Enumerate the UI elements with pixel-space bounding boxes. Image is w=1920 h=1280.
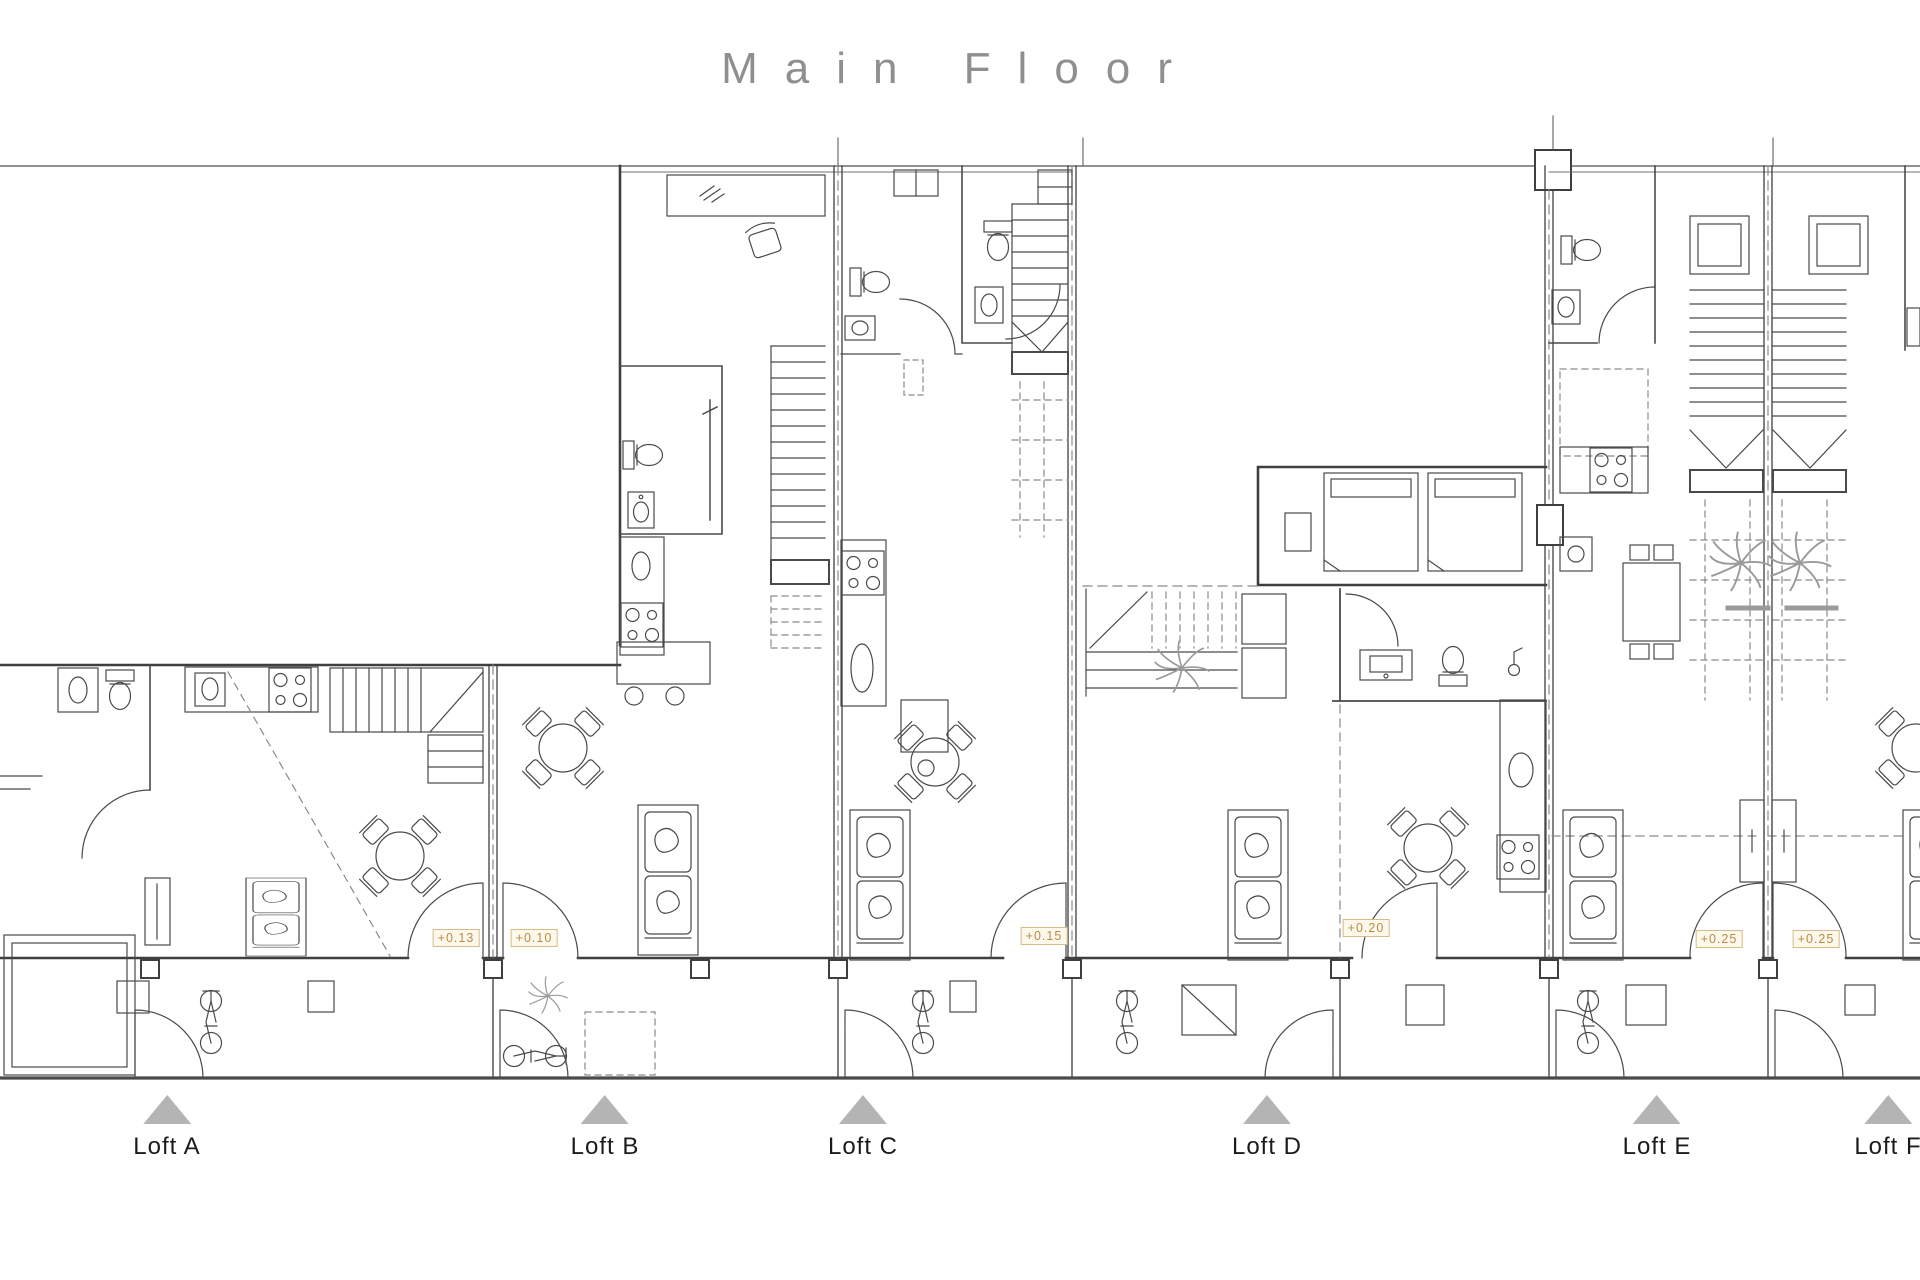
bicycle-icon [504,1046,567,1067]
elevation-badge: +0.25 [1793,930,1840,948]
plant-icon [529,977,567,1013]
dining-set-icon [1623,545,1680,659]
storage-room [4,935,135,1075]
bicycle-icon [1117,991,1138,1054]
dining-table-icon [1876,708,1920,789]
plant-icon [1711,533,1772,591]
loft-marker-b: Loft B [571,1095,640,1161]
loft-marker-d: Loft D [1232,1095,1302,1161]
toilet-icon [1561,236,1601,264]
loft-a-plan [0,665,483,958]
loft-e-plan [1549,166,1771,960]
dining-table-icon [523,708,604,789]
loft-label: Loft A [133,1133,200,1161]
stove-icon [621,603,663,647]
entrance-triangle-icon [581,1095,629,1124]
plant-icon [1770,533,1831,591]
elevation-badge: +0.13 [433,929,480,947]
entrance-triangle-icon [1864,1095,1912,1124]
structural-walls [0,166,1920,958]
sofa-icon [850,810,910,960]
loft-f-plan [1768,166,1920,960]
dining-table-icon [360,816,441,897]
toilet-icon [623,441,663,469]
dining-table-icon [1388,808,1469,889]
loft-marker-c: Loft C [828,1095,898,1161]
door-arc-icon [1346,594,1398,646]
stool-icon [625,687,643,705]
sink-icon [628,492,654,528]
porch-door-arc-icon [135,1010,1843,1078]
stool-icon [666,687,684,705]
shower-icon [1509,648,1523,676]
loft-label: Loft F [1854,1133,1920,1161]
loft-label: Loft E [1623,1133,1692,1161]
staircase-icon [1012,204,1068,537]
floor-plan-drawing [0,0,1920,1280]
door-arc-icon [82,790,150,858]
entrance-triangle-icon [1243,1095,1291,1124]
chair-icon [745,220,783,259]
staircase-icon [1086,589,1237,696]
door-arc-icon [841,299,962,354]
stove-icon [1497,835,1539,879]
vanity-icon [1360,650,1412,680]
staircase-icon [1773,216,1868,700]
bed-icon [1324,473,1522,571]
stove-icon [269,668,311,712]
sofa-icon [246,878,306,956]
elevation-badge: +0.15 [1021,927,1068,945]
staircase-icon [330,668,483,783]
toilet-icon [1439,647,1467,687]
party-walls [489,166,1772,958]
sofa-icon [1903,810,1920,960]
toilet-icon [850,268,890,296]
entrance-triangle-icon [143,1095,191,1124]
loft-d-plan [1083,473,1563,960]
sofa-icon [638,805,698,955]
nightstand-icon [1285,513,1311,551]
sofa-icon [1563,810,1623,960]
sofa-icon [1228,810,1288,960]
desk-icon [667,175,825,216]
loft-marker-e: Loft E [1623,1095,1692,1161]
stove-icon [842,551,884,595]
loft-label: Loft B [571,1133,640,1161]
entrance-triangle-icon [1633,1095,1681,1124]
elevation-badge: +0.25 [1696,930,1743,948]
loft-b-plan [503,175,829,958]
staircase-icon [1690,216,1763,700]
door-arc-icon [1006,285,1060,339]
toilet-icon [984,221,1012,261]
plant-icon [1155,641,1208,691]
bicycle-icon [201,991,222,1054]
porch-band [0,935,1920,1078]
stove-icon [1590,448,1632,492]
loft-marker-a: Loft A [133,1095,200,1161]
site-boundary [0,116,1920,190]
bicycle-icon [913,991,934,1054]
loft-c-plan [841,166,1072,960]
stool-icon [918,760,934,776]
door-arc-icon [1599,287,1655,343]
toilet-icon [106,670,134,710]
dining-table-icon [895,722,976,803]
loft-marker-f: Loft F [1854,1095,1920,1161]
planter-icon [117,981,1875,1035]
staircase-icon [771,346,829,648]
elevation-badge: +0.10 [511,929,558,947]
entry-door-arc-icon [991,883,1066,958]
entrance-triangle-icon [839,1095,887,1124]
loft-label: Loft D [1232,1133,1302,1161]
elevation-badge: +0.20 [1343,919,1390,937]
loft-label: Loft C [828,1133,898,1161]
floor-plan-page: { "title": { "text": "Main Floor" }, "lo… [0,0,1920,1280]
